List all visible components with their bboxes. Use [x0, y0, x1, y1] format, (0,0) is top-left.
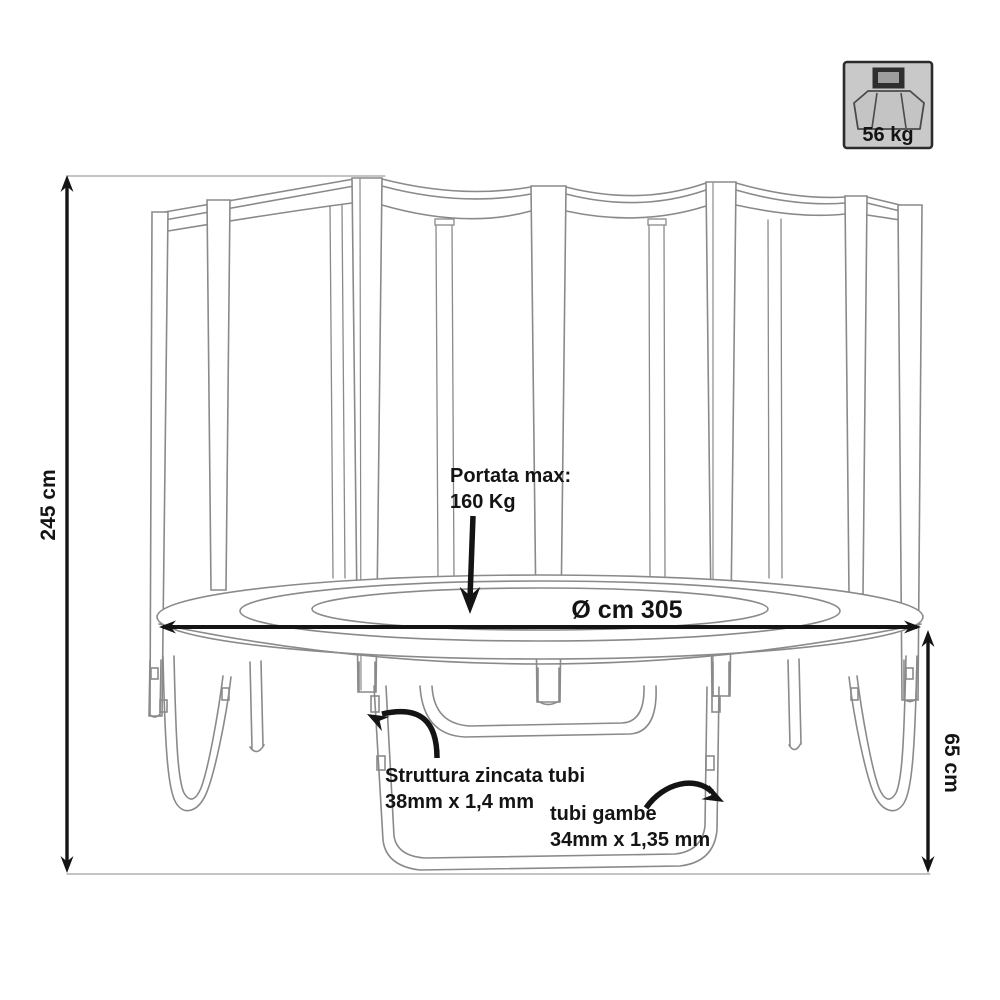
- net-top-band: [159, 179, 900, 231]
- frame-tubes-line1: Struttura zincata tubi: [385, 765, 585, 787]
- leg-tubes-annotation: tubi gambe 34mm x 1,35 mm: [550, 783, 728, 851]
- pole-right-mid: [845, 196, 867, 594]
- leg-height-dimension-label: 65 cm: [940, 733, 963, 793]
- frame-tubes-annotation: Struttura zincata tubi 38mm x 1,4 mm: [363, 707, 585, 813]
- leg-height-dimension: 65 cm: [922, 630, 964, 873]
- trampoline-dimension-diagram: 245 cm Ø cm 305 65 cm Portata max: 160 K…: [0, 0, 1000, 1000]
- leg-tubes-line1: tubi gambe: [550, 803, 657, 825]
- diameter-dimension-label: Ø cm 305: [571, 596, 682, 624]
- leg-left: [160, 656, 231, 811]
- frame-ring: [157, 575, 923, 664]
- frame-tubes-line2: 38mm x 1,4 mm: [385, 791, 534, 813]
- pole-stubs-below-frame: [149, 660, 917, 717]
- max-load-line1: Portata max:: [450, 465, 571, 487]
- diagram-canvas: 245 cm Ø cm 305 65 cm Portata max: 160 K…: [0, 0, 1000, 1000]
- pole-far-left: [150, 212, 168, 716]
- pole-left-mid: [207, 200, 230, 590]
- weight-badge: 56 kg: [844, 62, 932, 148]
- height-dimension-label: 245 cm: [37, 469, 60, 540]
- max-load-line2: 160 Kg: [450, 491, 516, 513]
- height-dimension: 245 cm: [37, 175, 74, 873]
- dimension-layer: 245 cm Ø cm 305 65 cm Portata max: 160 K…: [37, 175, 963, 873]
- leg-tubes-line2: 34mm x 1,35 mm: [550, 829, 710, 851]
- weight-badge-label: 56 kg: [862, 124, 913, 146]
